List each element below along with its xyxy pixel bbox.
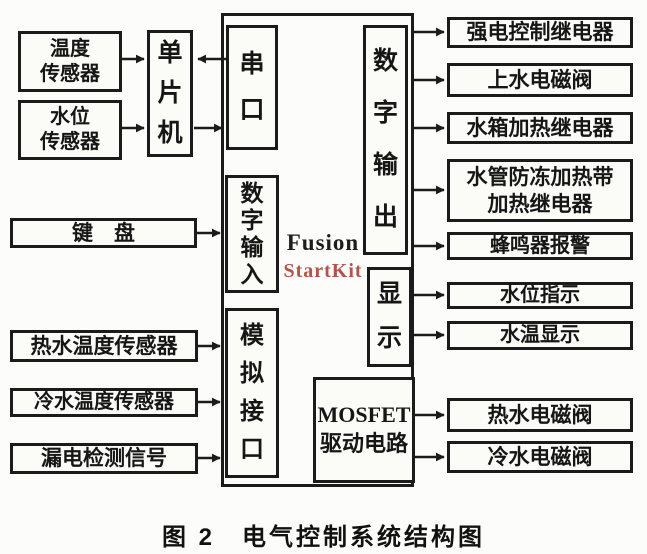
box-water-level-indicator: 水位指示 <box>447 282 633 309</box>
power-control-relay-label: 强电控制继电器 <box>467 19 614 45</box>
mcu-label: 单片机 <box>157 34 183 154</box>
board-name-line1: Fusion <box>277 228 369 258</box>
box-display: 显示 <box>367 267 412 367</box>
box-cold-water-temp-sensor: 冷水温度传感器 <box>10 388 198 417</box>
water-level-indicator-label: 水位指示 <box>500 283 580 308</box>
box-digital-output: 数字输出 <box>363 25 408 255</box>
keyboard-label: 键 盘 <box>72 220 135 246</box>
box-level-sensor: 水位 传感器 <box>18 100 122 160</box>
mosfet-driver-line2: 驱动电路 <box>320 430 408 459</box>
cold-water-temp-sensor-label: 冷水温度传感器 <box>34 390 174 415</box>
tank-heating-relay-label: 水箱加热继电器 <box>467 115 614 141</box>
box-mcu: 单片机 <box>147 30 193 157</box>
buzzer-alarm-label: 蜂鸣器报警 <box>490 234 590 259</box>
figure-canvas: 温度 传感器 水位 传感器 单片机 键 盘 热水温度传感器 冷水温度传感器 漏电… <box>0 0 647 554</box>
box-hot-water-valve: 热水电磁阀 <box>447 398 633 432</box>
box-temp-sensor: 温度 传感器 <box>18 31 122 92</box>
digital-input-label: 数字输入 <box>240 180 264 288</box>
box-hot-water-temp-sensor: 热水温度传感器 <box>10 330 198 362</box>
mosfet-driver-line1: MOSFET <box>318 401 411 430</box>
figure-caption: 图 2 电气控制系统结构图 <box>0 517 647 552</box>
serial-port-label: 串口 <box>239 42 265 134</box>
digital-output-label: 数字输出 <box>372 36 398 244</box>
box-analog-interface: 模拟接口 <box>225 308 279 478</box>
hot-water-temp-sensor-label: 热水温度传感器 <box>31 333 178 359</box>
pipe-antifreeze-line2: 加热继电器 <box>488 191 593 217</box>
temp-sensor-line1: 温度 <box>50 37 90 62</box>
box-tank-heating-relay: 水箱加热继电器 <box>447 112 633 144</box>
box-digital-input: 数字输入 <box>225 175 279 293</box>
box-pipe-antifreeze-heating-relay: 水管防冻加热带 加热继电器 <box>447 159 633 222</box>
box-cold-water-valve: 冷水电磁阀 <box>447 441 633 473</box>
water-supply-valve-label: 上水电磁阀 <box>488 67 593 93</box>
level-sensor-line2: 传感器 <box>40 130 100 155</box>
box-water-temp-display: 水温显示 <box>447 321 633 350</box>
box-keyboard: 键 盘 <box>10 218 197 248</box>
box-water-supply-valve: 上水电磁阀 <box>447 63 633 97</box>
box-mosfet-driver: MOSFET 驱动电路 <box>313 377 415 483</box>
box-buzzer-alarm: 蜂鸣器报警 <box>447 232 633 260</box>
level-sensor-line1: 水位 <box>50 105 90 130</box>
hot-water-valve-label: 热水电磁阀 <box>488 402 593 428</box>
pipe-antifreeze-line1: 水管防冻加热带 <box>467 164 614 190</box>
analog-interface-label: 模拟接口 <box>239 317 264 469</box>
cold-water-valve-label: 冷水电磁阀 <box>488 444 593 470</box>
board-name-line2: StartKit <box>277 258 369 284</box>
temp-sensor-line2: 传感器 <box>40 62 100 87</box>
box-leakage-signal: 漏电检测信号 <box>10 443 198 474</box>
board-name: Fusion StartKit <box>277 228 369 284</box>
box-power-control-relay: 强电控制继电器 <box>447 17 633 48</box>
display-label: 显示 <box>376 273 402 361</box>
water-temp-display-label: 水温显示 <box>500 323 580 348</box>
leakage-signal-label: 漏电检测信号 <box>41 445 167 471</box>
box-serial-port: 串口 <box>226 25 278 150</box>
